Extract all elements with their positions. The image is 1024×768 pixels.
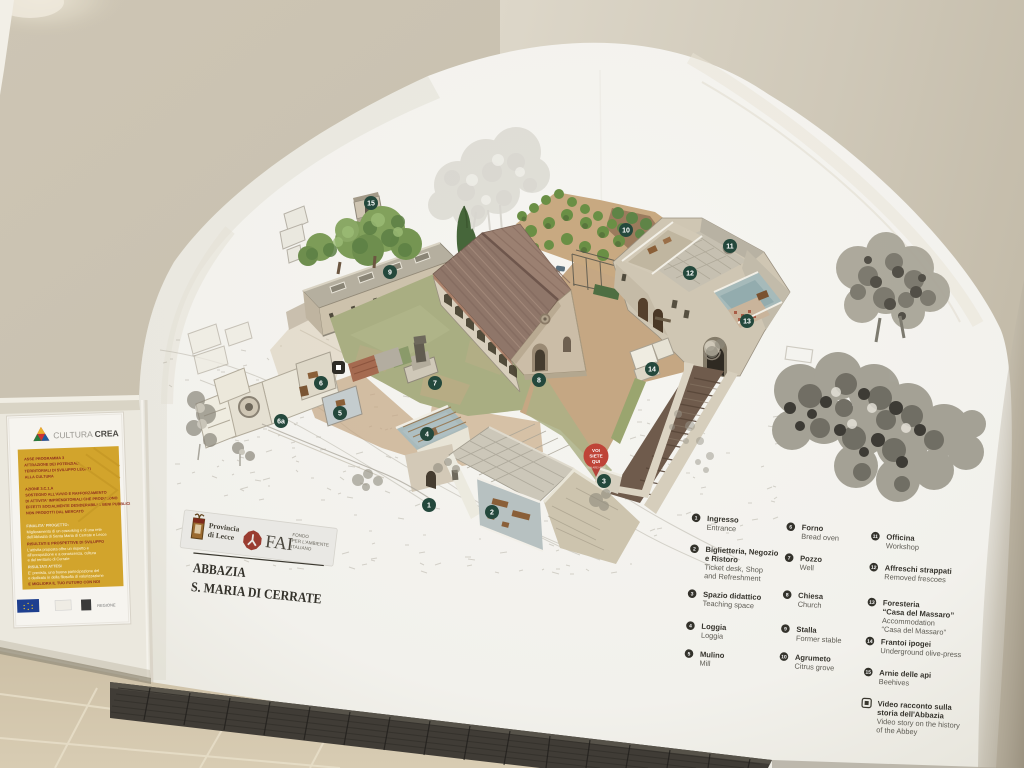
svg-text:10: 10 (622, 228, 630, 235)
svg-text:15: 15 (367, 201, 375, 208)
svg-text:VOI: VOI (592, 448, 600, 453)
svg-text:6: 6 (319, 381, 323, 388)
svg-text:8: 8 (786, 592, 789, 598)
svg-text:7: 7 (433, 381, 437, 388)
svg-text:6a: 6a (277, 419, 285, 426)
svg-text:Entrance: Entrance (706, 523, 736, 534)
svg-text:7: 7 (788, 555, 791, 561)
svg-text:5: 5 (687, 651, 690, 657)
svg-text:6: 6 (789, 524, 792, 530)
svg-text:Mill: Mill (699, 659, 711, 669)
svg-text:Well: Well (799, 563, 814, 573)
svg-text:2: 2 (693, 546, 696, 552)
svg-text:13: 13 (743, 319, 751, 326)
svg-text:REGIONE: REGIONE (97, 602, 116, 608)
svg-text:5: 5 (338, 411, 342, 418)
svg-text:11: 11 (873, 534, 879, 540)
svg-text:SIETE: SIETE (589, 454, 602, 459)
svg-text:10: 10 (781, 654, 787, 660)
svg-text:12: 12 (871, 565, 877, 571)
svg-text:9: 9 (784, 626, 787, 632)
svg-text:4: 4 (689, 623, 692, 629)
svg-text:13: 13 (869, 600, 875, 606)
svg-text:QUI: QUI (592, 459, 600, 464)
svg-text:1: 1 (427, 503, 431, 510)
svg-text:Workshop: Workshop (886, 541, 920, 552)
svg-text:Church: Church (797, 600, 821, 610)
svg-text:Loggia: Loggia (701, 631, 725, 641)
svg-text:3: 3 (691, 591, 694, 597)
svg-text:YOU ARE HERE: YOU ARE HERE (586, 466, 606, 470)
svg-text:3: 3 (602, 479, 606, 486)
svg-text:8: 8 (537, 378, 541, 385)
svg-text:15: 15 (865, 670, 871, 676)
svg-text:Beehives: Beehives (879, 677, 910, 688)
svg-text:12: 12 (686, 271, 694, 278)
svg-text:1: 1 (695, 516, 698, 522)
svg-text:9: 9 (388, 270, 392, 277)
svg-text:14: 14 (867, 639, 873, 645)
svg-text:11: 11 (726, 244, 734, 251)
svg-text:2: 2 (490, 510, 494, 517)
svg-text:FAI: FAI (264, 531, 294, 554)
svg-text:14: 14 (648, 367, 656, 374)
svg-text:4: 4 (425, 432, 429, 439)
